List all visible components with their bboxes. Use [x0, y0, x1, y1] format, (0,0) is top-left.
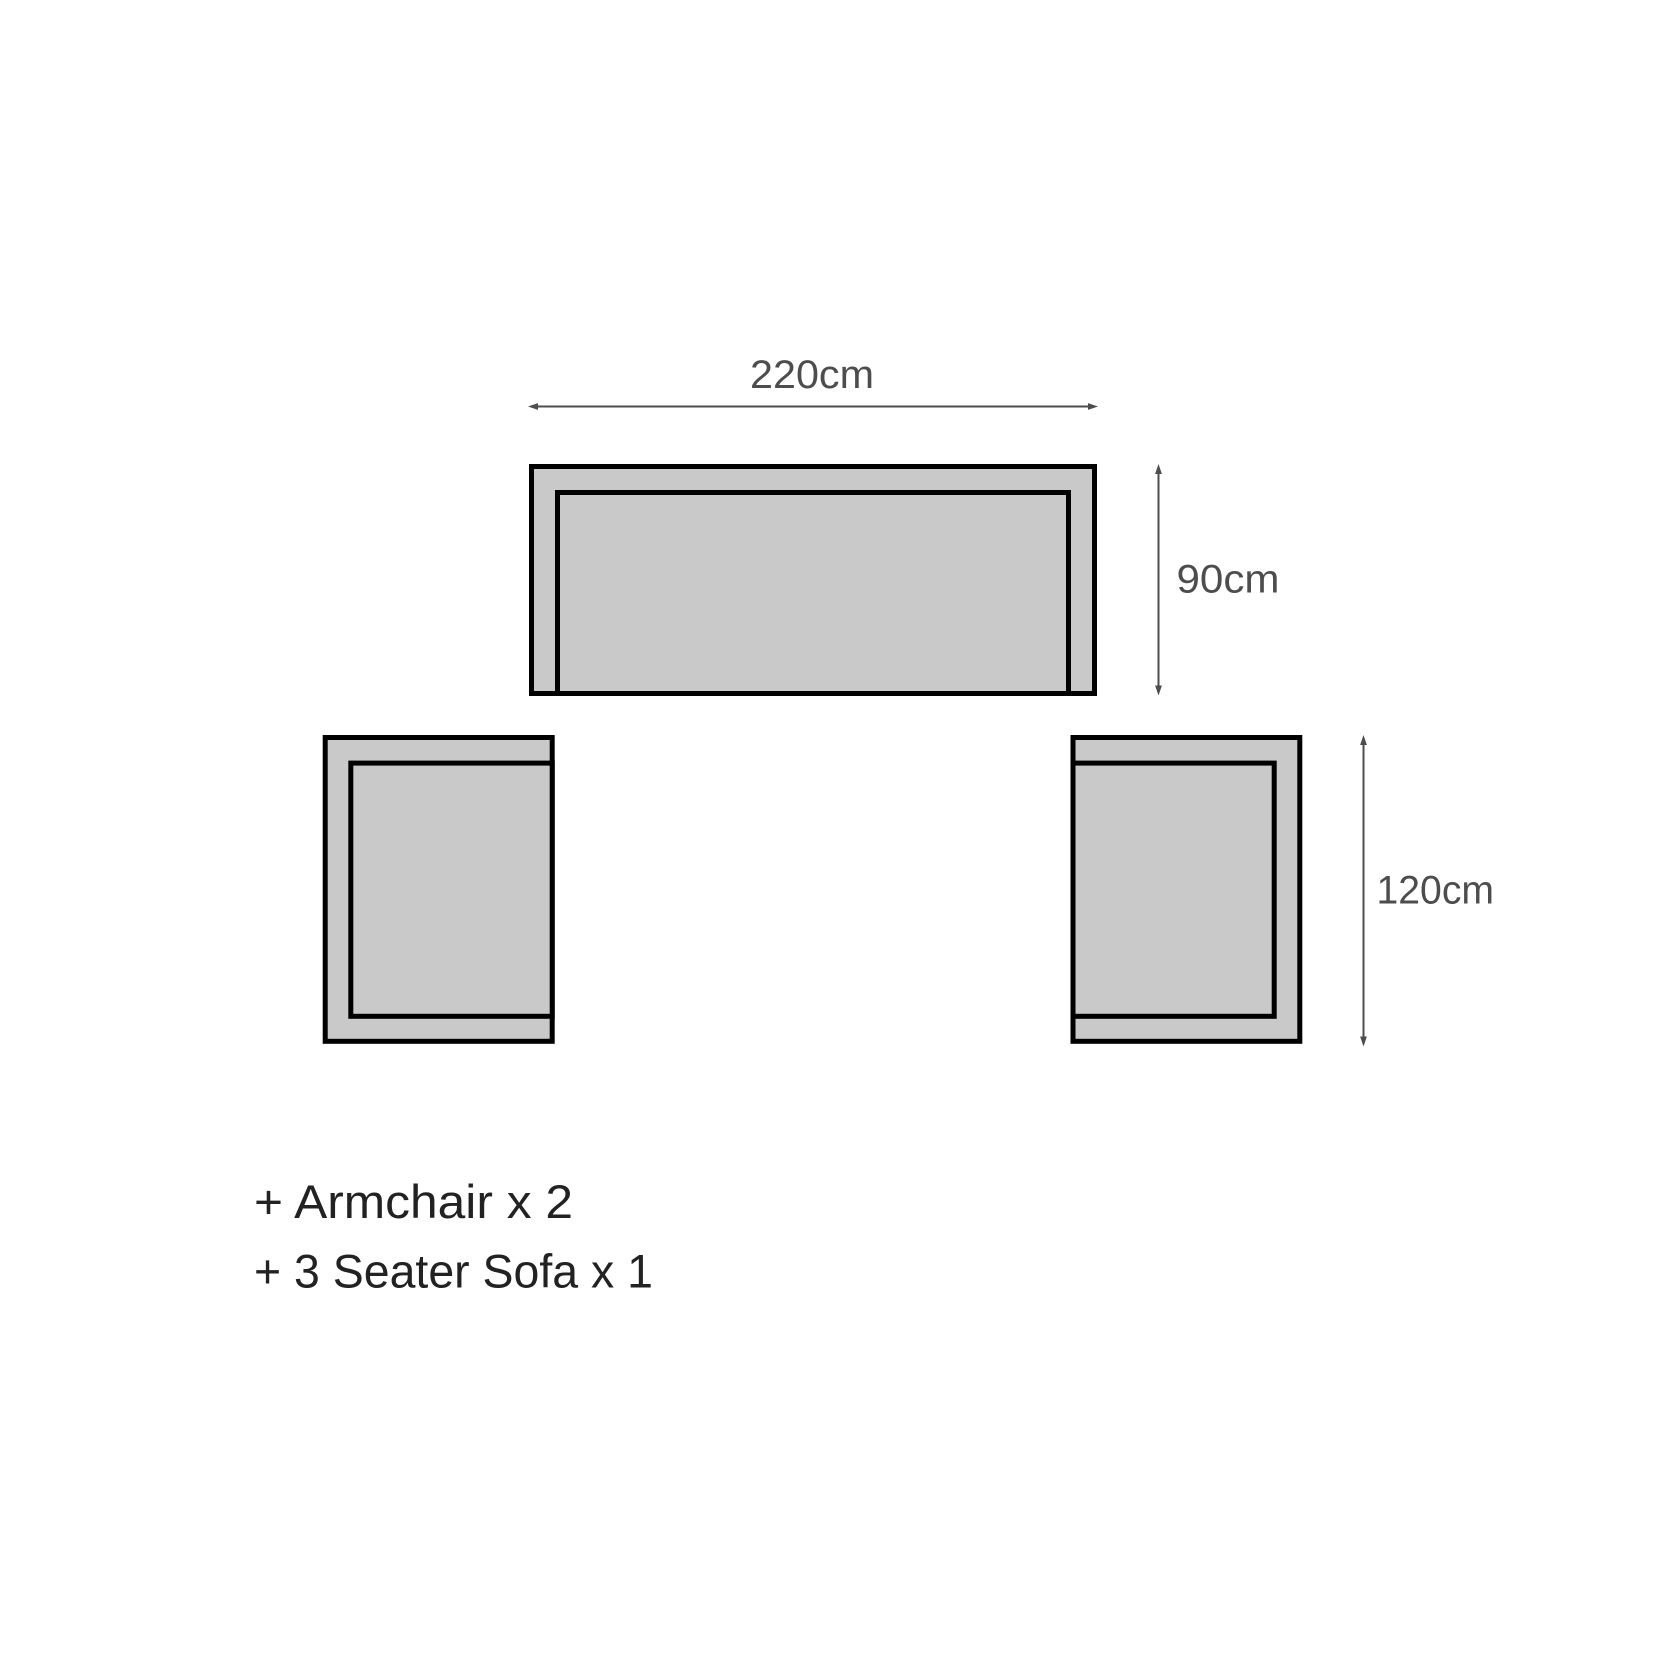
svg-text:120cm: 120cm [1377, 868, 1495, 912]
svg-text:+ Armchair x 2: + Armchair x 2 [254, 1175, 573, 1228]
svg-text:220cm: 220cm [750, 353, 874, 397]
svg-text:90cm: 90cm [1177, 557, 1280, 601]
svg-text:+ 3 Seater Sofa x 1: + 3 Seater Sofa x 1 [254, 1245, 653, 1298]
